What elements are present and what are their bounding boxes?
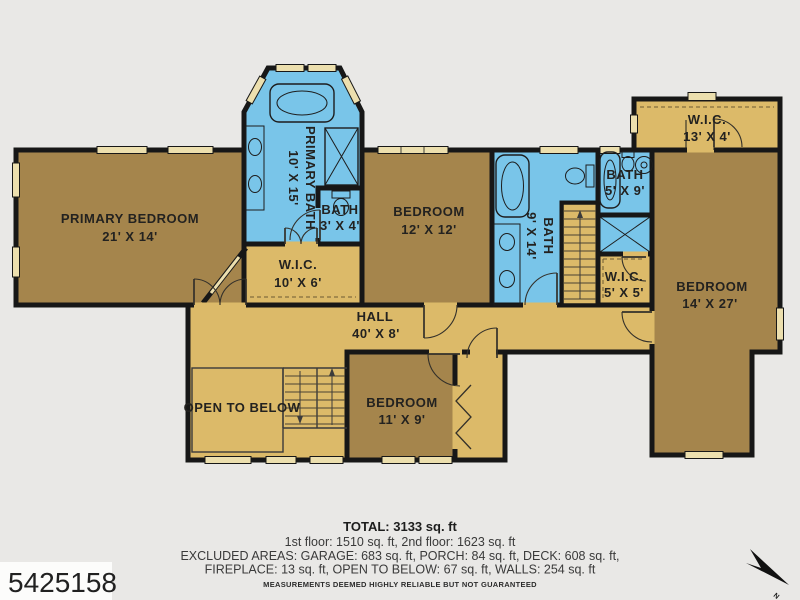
window	[688, 93, 716, 101]
disclaimer-text: MEASUREMENTS DEEMED HIGHLY RELIABLE BUT …	[263, 580, 537, 589]
primary-bedroom-label: PRIMARY BEDROOM	[61, 211, 199, 226]
primary-bedroom-dims: 21' X 14'	[102, 229, 158, 244]
hall-dims: 40' X 8'	[352, 326, 400, 341]
window	[308, 65, 336, 72]
window	[378, 147, 448, 154]
compass: N	[746, 549, 789, 600]
window	[168, 147, 213, 154]
window	[310, 457, 343, 464]
excluded-areas-text-1: EXCLUDED AREAS: GARAGE: 683 sq. ft, PORC…	[180, 549, 619, 563]
window	[631, 115, 638, 133]
window	[97, 147, 147, 154]
bath-5x9-dims: 5' X 9'	[605, 183, 645, 198]
window	[13, 247, 20, 277]
window	[777, 308, 784, 340]
wic-13x4-label: W.I.C.	[688, 112, 726, 127]
floorplan-drawing: PRIMARY BEDROOM 21' X 14' PRIMARY BATH 1…	[0, 0, 800, 600]
bath-5x9-label: BATH	[606, 167, 643, 182]
excluded-areas-text-2: FIREPLACE: 13 sq. ft, OPEN TO BELOW: 67 …	[205, 563, 596, 577]
mls-number: 5425158	[8, 567, 117, 598]
wic-5x5-dims: 5' X 5'	[604, 285, 644, 300]
bath-9x14-label: BATH	[541, 217, 556, 254]
wic-10x6-dims: 10' X 6'	[274, 275, 322, 290]
floor-areas-text: 1st floor: 1510 sq. ft, 2nd floor: 1623 …	[285, 535, 516, 549]
primary-bath-label: PRIMARY BATH	[303, 126, 318, 230]
bedroom-14x27-dims: 14' X 27'	[682, 296, 738, 311]
window	[205, 457, 251, 464]
footer-summary: TOTAL: 3133 sq. ft 1st floor: 1510 sq. f…	[180, 519, 619, 589]
window	[266, 457, 296, 464]
window	[382, 457, 415, 464]
window	[685, 452, 723, 459]
floorplan-page: PRIMARY BEDROOM 21' X 14' PRIMARY BATH 1…	[0, 0, 800, 600]
window	[419, 457, 452, 464]
hall-label: HALL	[357, 309, 394, 324]
bath-3x4-label: BATH	[321, 202, 358, 217]
wic-13x4-dims: 13' X 4'	[683, 129, 731, 144]
window	[540, 147, 578, 154]
bath-9x14-dims: 9' X 14'	[524, 212, 539, 260]
bedroom-11x9-dims: 11' X 9'	[378, 412, 425, 427]
bedroom-14x27-label: BEDROOM	[676, 279, 747, 294]
bedroom-11x9-label: BEDROOM	[366, 395, 437, 410]
window	[13, 163, 20, 197]
window	[276, 65, 304, 72]
room-primary-bedroom	[16, 150, 244, 305]
bedroom-12x12-label: BEDROOM	[393, 204, 464, 219]
bath-3x4-dims: 3' X 4'	[320, 218, 360, 233]
mls-badge: 5425158	[0, 562, 117, 600]
north-arrow-icon	[746, 549, 789, 585]
open-to-below-label: OPEN TO BELOW	[184, 400, 301, 415]
primary-bath-dims: 10' X 15'	[286, 150, 301, 206]
total-area-text: TOTAL: 3133 sq. ft	[343, 519, 457, 534]
wic-5x5-label: W.I.C.	[605, 269, 643, 284]
bedroom-12x12-dims: 12' X 12'	[401, 222, 457, 237]
north-label: N	[772, 592, 780, 600]
wic-10x6-label: W.I.C.	[279, 257, 317, 272]
room-closet-11x9	[455, 352, 505, 460]
